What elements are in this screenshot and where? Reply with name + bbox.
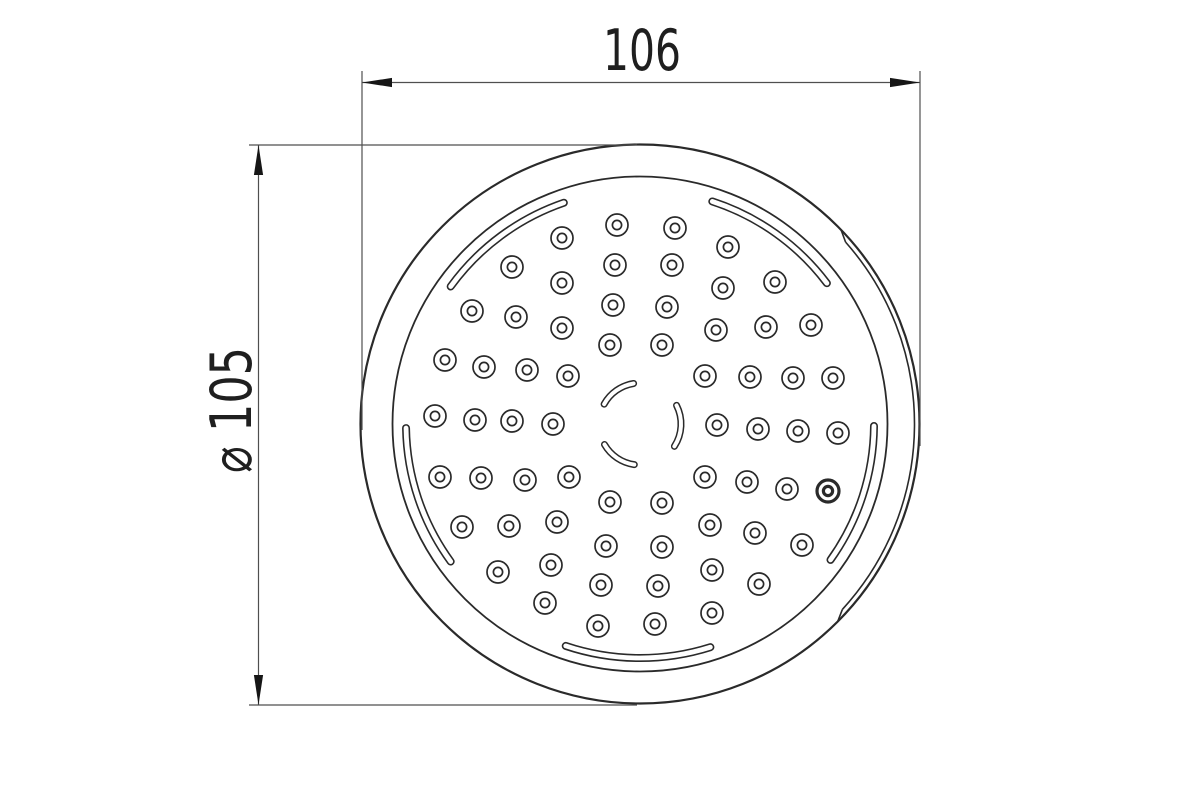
spray-hole — [822, 367, 844, 389]
outer-rim-circle — [361, 145, 920, 704]
spray-hole-inner — [707, 565, 716, 574]
spray-hole — [587, 615, 609, 637]
spray-hole — [540, 554, 562, 576]
inner-face-circle — [393, 177, 888, 672]
spray-hole — [542, 413, 564, 435]
spray-hole-inner — [479, 362, 488, 371]
spray-hole-inner — [761, 322, 770, 331]
spray-hole — [487, 561, 509, 583]
spray-hole-inner — [750, 528, 759, 537]
spray-hole-inner — [662, 302, 671, 311]
spray-hole-inner — [511, 312, 520, 321]
spray-hole-inner — [608, 300, 617, 309]
spray-hole-inner — [653, 581, 662, 590]
dim-label-diameter: ⌀ 105 — [199, 347, 265, 473]
spray-hole — [647, 575, 669, 597]
spray-hole-inner — [712, 420, 721, 429]
spray-hole — [701, 602, 723, 624]
dim-label-width: 106 — [603, 18, 681, 84]
spray-hole-inner — [546, 560, 555, 569]
spray-hole — [470, 467, 492, 489]
spray-hole — [534, 592, 556, 614]
spray-hole — [651, 492, 673, 514]
spray-hole — [424, 405, 446, 427]
rim-slot — [406, 428, 451, 561]
spray-hole — [705, 319, 727, 341]
spray-hole-inner — [557, 323, 566, 332]
spray-hole — [590, 574, 612, 596]
dim-arrow-right — [890, 78, 920, 87]
spray-hole — [736, 471, 758, 493]
spray-hole-inner — [605, 340, 614, 349]
spray-hole-inner — [493, 567, 502, 576]
spray-hole — [656, 296, 678, 318]
spray-hole-inner — [507, 262, 516, 271]
spray-hole-inner — [657, 340, 666, 349]
spray-hole-inner — [457, 522, 466, 531]
spray-hole-inner — [507, 416, 516, 425]
spray-hole — [599, 334, 621, 356]
drawing-canvas: 106 ⌀ 105 — [0, 0, 1200, 799]
spray-hole — [747, 418, 769, 440]
spray-hole — [694, 365, 716, 387]
spray-hole-inner — [723, 242, 732, 251]
spray-hole — [501, 410, 523, 432]
spray-hole — [434, 349, 456, 371]
spray-hole-inner — [828, 373, 837, 382]
dim-arrow-left — [362, 78, 392, 87]
spray-hole-inner — [522, 365, 531, 374]
spray-hole-inner — [833, 428, 842, 437]
spray-hole-bold-inner — [823, 486, 832, 495]
spray-hole — [791, 534, 813, 556]
spray-hole-inner — [718, 283, 727, 292]
spray-hole — [595, 535, 617, 557]
spray-hole — [782, 367, 804, 389]
spray-hole — [748, 573, 770, 595]
spray-hole — [501, 256, 523, 278]
spray-hole-inner — [548, 419, 557, 428]
spray-hole — [557, 365, 579, 387]
spray-hole-inner — [557, 278, 566, 287]
spray-hole — [764, 271, 786, 293]
spray-hole — [606, 214, 628, 236]
spray-hole-inner — [745, 372, 754, 381]
spray-hole-inner — [667, 260, 676, 269]
spray-hole — [699, 514, 721, 536]
spray-hole-inner — [705, 520, 714, 529]
spray-hole — [661, 254, 683, 276]
spray-hole — [787, 420, 809, 442]
spray-hole-inner — [753, 424, 762, 433]
spray-hole-inner — [742, 477, 751, 486]
spray-hole-inner — [540, 598, 549, 607]
spray-hole-inner — [788, 373, 797, 382]
dim-arrow-top — [254, 145, 263, 175]
spray-hole-inner — [470, 415, 479, 424]
spray-hole-inner — [650, 619, 659, 628]
spray-hole-inner — [610, 260, 619, 269]
spray-hole — [776, 478, 798, 500]
spray-hole — [800, 314, 822, 336]
dimension-annotations — [249, 71, 920, 705]
spray-hole-inner — [806, 320, 815, 329]
spray-hole-inner — [593, 621, 602, 630]
spray-hole-inner — [711, 325, 720, 334]
spray-hole — [604, 254, 626, 276]
spray-hole — [651, 334, 673, 356]
spray-hole-inner — [707, 608, 716, 617]
rim-slot-fill — [406, 428, 451, 561]
spray-hole — [551, 272, 573, 294]
spray-hole-inner — [601, 541, 610, 550]
spray-hole — [717, 236, 739, 258]
dim-arrow-bottom — [254, 675, 263, 705]
spray-hole — [514, 469, 536, 491]
spray-hole-inner — [670, 223, 679, 232]
spray-hole — [694, 466, 716, 488]
spray-hole — [664, 217, 686, 239]
spray-hole — [551, 317, 573, 339]
spray-hole-inner — [467, 306, 476, 315]
spray-hole-inner — [596, 580, 605, 589]
spray-hole — [706, 414, 728, 436]
spray-hole-inner — [797, 540, 806, 549]
spray-hole — [461, 300, 483, 322]
spray-hole — [644, 613, 666, 635]
spray-hole-inner — [754, 579, 763, 588]
spray-hole — [505, 306, 527, 328]
spray-hole-inner — [700, 472, 709, 481]
spray-hole-inner — [700, 371, 709, 380]
spray-hole — [451, 516, 473, 538]
spray-hole-inner — [520, 475, 529, 484]
spray-hole — [602, 294, 624, 316]
plate-geometry — [361, 145, 920, 704]
spray-hole — [744, 522, 766, 544]
spray-hole — [739, 366, 761, 388]
spray-hole — [827, 422, 849, 444]
spray-hole-inner — [435, 472, 444, 481]
spray-hole — [651, 536, 673, 558]
spray-hole — [551, 227, 573, 249]
spray-hole — [712, 277, 734, 299]
spray-hole-inner — [564, 472, 573, 481]
spray-hole-inner — [770, 277, 779, 286]
spray-hole-inner — [476, 473, 485, 482]
spray-hole — [546, 511, 568, 533]
spray-hole — [599, 491, 621, 513]
spray-hole-inner — [612, 220, 621, 229]
spray-hole-inner — [605, 497, 614, 506]
spray-hole-inner — [782, 484, 791, 493]
spray-hole-inner — [563, 371, 572, 380]
spray-hole — [755, 316, 777, 338]
spray-hole-inner — [657, 498, 666, 507]
spray-hole-inner — [793, 426, 802, 435]
spray-hole-inner — [504, 521, 513, 530]
spray-hole — [498, 515, 520, 537]
spray-hole — [429, 466, 451, 488]
spray-hole-inner — [440, 355, 449, 364]
spray-hole — [701, 559, 723, 581]
spray-hole-inner — [557, 233, 566, 242]
spray-hole-inner — [657, 542, 666, 551]
spray-hole — [558, 466, 580, 488]
spray-hole-inner — [552, 517, 561, 526]
spray-hole — [464, 409, 486, 431]
rim-slot — [831, 426, 874, 560]
technical-drawing: 106 ⌀ 105 — [0, 0, 1200, 799]
spray-hole-bold — [817, 480, 839, 502]
spray-hole — [516, 359, 538, 381]
spray-hole-inner — [430, 411, 439, 420]
spray-hole — [473, 356, 495, 378]
